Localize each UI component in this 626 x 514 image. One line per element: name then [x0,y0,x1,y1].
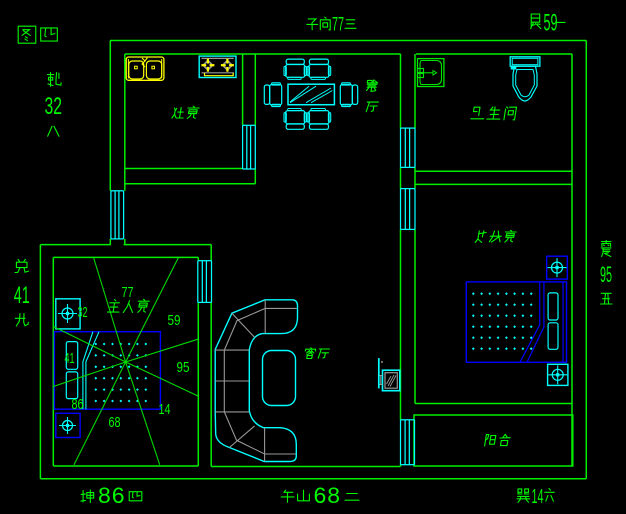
svg-text:14: 14 [532,486,544,508]
svg-text:59: 59 [544,10,558,37]
svg-text:68: 68 [313,484,341,510]
svg-text:95: 95 [177,359,190,376]
svg-text:77: 77 [122,284,134,301]
svg-text:86: 86 [98,484,126,510]
svg-text:41: 41 [14,282,30,309]
svg-text:41: 41 [65,350,75,367]
svg-text:77: 77 [332,15,344,36]
svg-text:68: 68 [109,414,121,431]
svg-text:32: 32 [45,93,63,120]
svg-text:14: 14 [159,401,171,418]
svg-text:32: 32 [78,304,88,321]
svg-text:86: 86 [72,396,84,413]
svg-text:95: 95 [600,262,612,287]
svg-text:59: 59 [168,312,181,329]
